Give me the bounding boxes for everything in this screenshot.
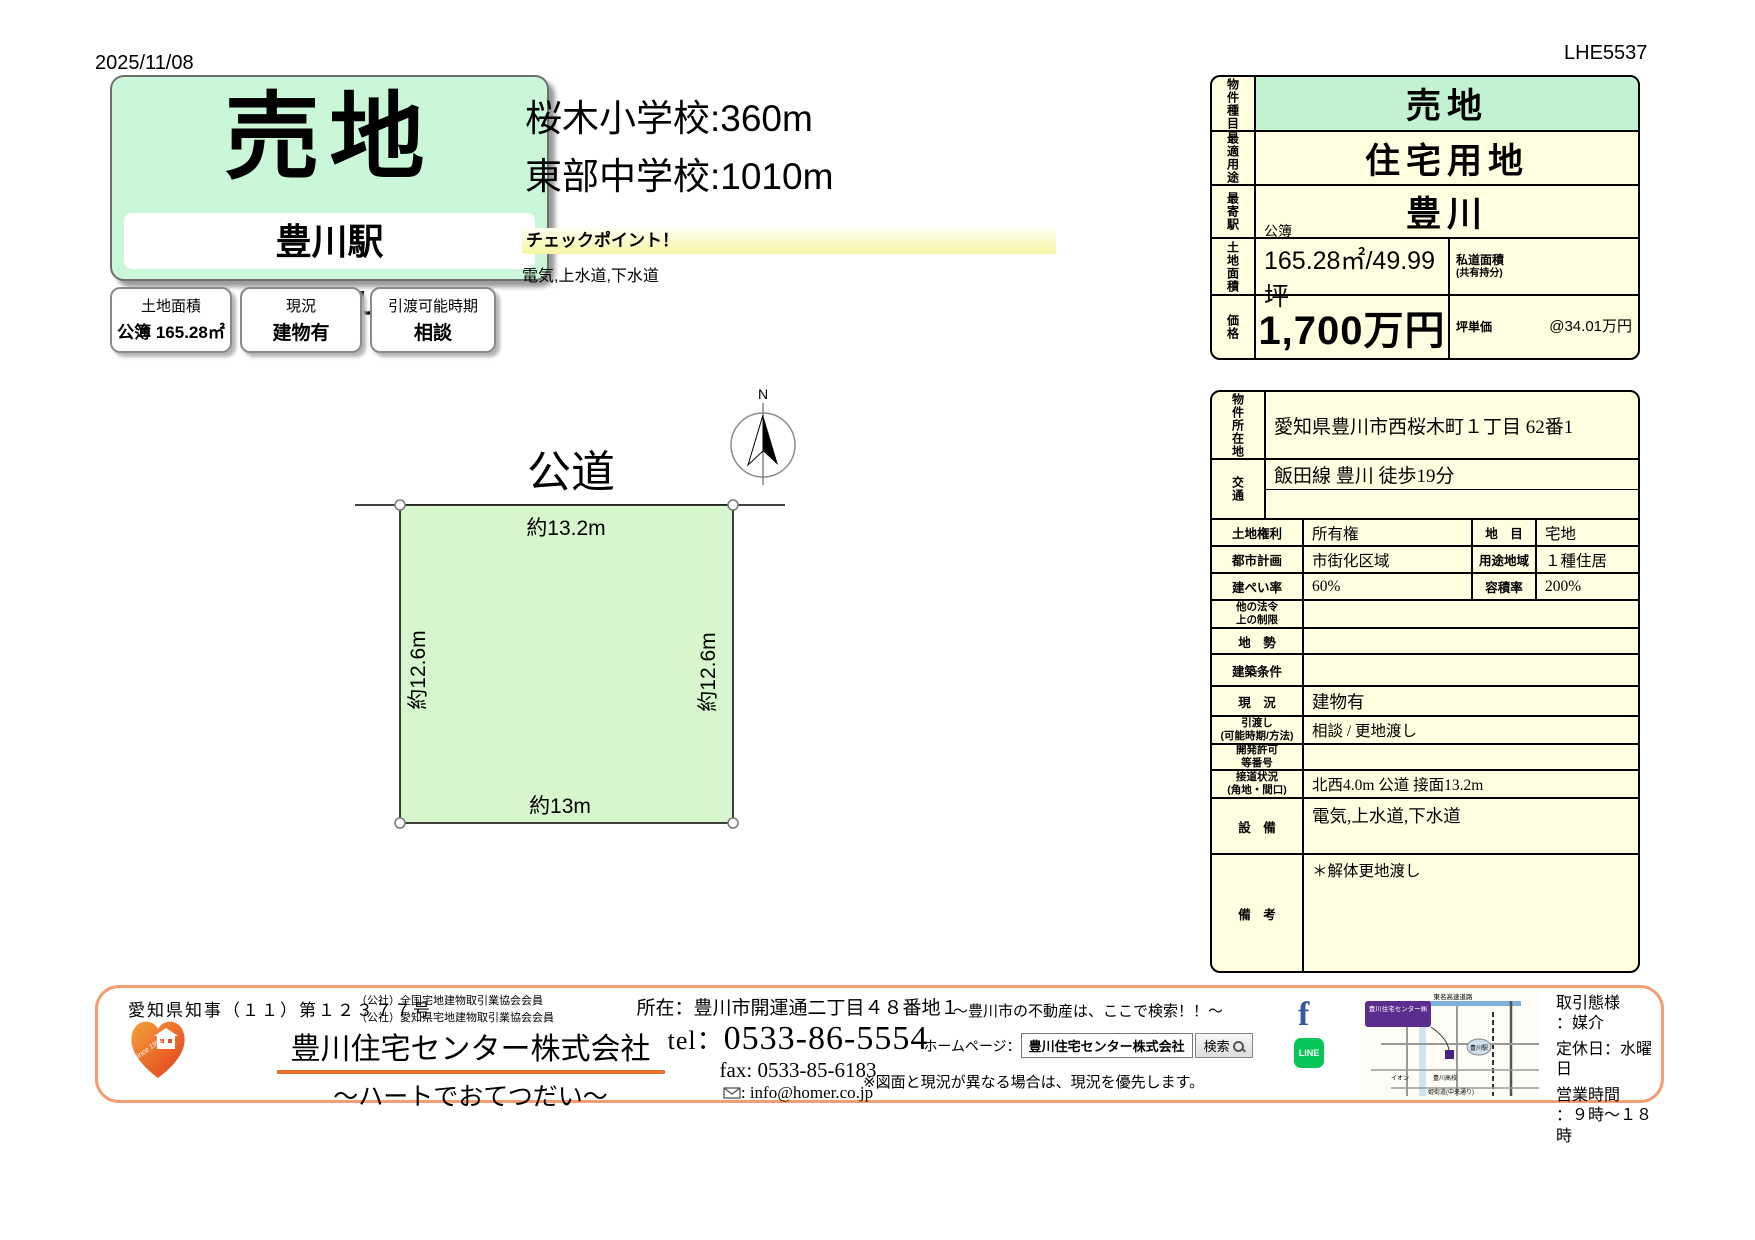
company-heart-logo: since 1982 [126, 1014, 190, 1084]
elementary-school-distance: 桜木小学校:360m [525, 88, 813, 142]
svg-text:東名高速道路: 東名高速道路 [1434, 992, 1474, 1001]
summary-value-area: 公簿 165.28㎡/49.99坪 [1256, 239, 1448, 294]
flyer-page: 2025/11/08 LHE5537 売地 豊川駅 更地渡し 土地面積 公簿 1… [0, 0, 1755, 1240]
facebook-icon[interactable]: f [1298, 996, 1309, 1034]
business-info-block: 取引態様 ：媒介 定休日：水曜日 営業時間 ：９時～１８時 [1556, 994, 1661, 1152]
hero-card: 売地 豊川駅 [110, 75, 549, 281]
detail-value-transport: 飯田線 豊川 徒歩19分 [1266, 460, 1638, 518]
utilities-note: 電気,上水道,下水道 [522, 262, 659, 286]
summary-label-area: 土地面積 [1212, 239, 1256, 294]
homepage-row: ホームページ：豊川住宅センター株式会社検索 [868, 1033, 1308, 1058]
homepage-label: ホームページ： [923, 1038, 1020, 1054]
compass-icon: N [731, 386, 795, 485]
detail-label-location: 物件所在地 [1212, 392, 1266, 458]
svg-text:イオン: イオン [1391, 1075, 1409, 1082]
info-card-current-state: 現況 建物有 [240, 287, 362, 353]
plot-diagram: 公道 N 約13.2m 約12.6m 約12.6m 約13m [330, 385, 810, 840]
land-parcel [400, 505, 733, 823]
unit-price-cell: 坪単価 @34.01万円 [1448, 296, 1638, 358]
dimension-bottom: 約13m [529, 795, 591, 818]
property-type-title: 売地 [112, 79, 547, 198]
info-card-land-area: 土地面積 公簿 165.28㎡ [110, 287, 232, 353]
summary-label-use: 最適用途 [1212, 132, 1256, 184]
print-date: 2025/11/08 [95, 52, 194, 75]
envelope-icon [723, 1087, 741, 1099]
info-card-handover: 引渡可能時期 相談 [370, 287, 496, 353]
dimension-top: 約13.2m [526, 517, 605, 540]
corner-marker [728, 500, 738, 510]
corner-marker [395, 818, 405, 828]
line-icon[interactable]: LINE [1294, 1038, 1324, 1068]
svg-text:豊川住宅センター㈱: 豊川住宅センター㈱ [1369, 1004, 1428, 1013]
summary-label-station: 最寄駅 [1212, 186, 1256, 237]
summary-value-type: 売地 [1256, 77, 1638, 130]
association-memberships: （公社）全国宅地建物取引業協会会員 （公社）愛知県宅地建物取引業協会会員 [356, 993, 554, 1026]
search-banner: ～豊川市の不動産は、ここで検索！！～ [868, 1000, 1308, 1021]
dimension-right: 約12.6m [697, 632, 720, 711]
corner-marker [395, 500, 405, 510]
summary-value-price: 1,700万円 [1256, 296, 1448, 358]
summary-label-type: 物件種目 [1212, 77, 1256, 130]
checkpoint-banner: チェックポイント！ [522, 228, 1056, 254]
corner-marker [728, 818, 738, 828]
svg-text:豊川駅: 豊川駅 [1470, 1044, 1488, 1052]
nearest-station-banner: 豊川駅 [124, 213, 535, 269]
junior-high-distance: 東部中学校:1010m [525, 146, 833, 200]
svg-text:姫街道(中央通り): 姫街道(中央通り) [1428, 1088, 1474, 1096]
property-code: LHE5537 [1560, 42, 1651, 65]
search-button[interactable]: 検索 [1195, 1033, 1253, 1058]
private-road-cell: 私道面積 (共有持分) [1448, 239, 1638, 294]
detail-value-location: 愛知県豊川市西桜木町１丁目 62番1 [1266, 392, 1638, 458]
summary-table: 物件種目 売地 最適用途 住宅用地 最寄駅 豊川 土地面積 公簿 165.28㎡… [1210, 75, 1640, 360]
detail-label-transport: 交通 [1212, 460, 1266, 518]
business-hours: 営業時間 ：９時～１８時 [1556, 1086, 1661, 1147]
magnifier-icon [1233, 1041, 1244, 1052]
dimension-left: 約12.6m [407, 630, 430, 709]
homepage-keyword-box[interactable]: 豊川住宅センター株式会社 [1021, 1033, 1193, 1058]
disclaimer-note: ※図面と現況が異なる場合は、現況を優先します。 [863, 1071, 1204, 1092]
footer-bar: 愛知県知事（１１）第１２３７７号 （公社）全国宅地建物取引業協会会員 （公社）愛… [95, 985, 1664, 1103]
road-label: 公道 [527, 448, 615, 497]
summary-label-price: 価格 [1212, 296, 1256, 358]
detail-table: 物件所在地 愛知県豊川市西桜木町１丁目 62番1 交通 飯田線 豊川 徒歩19分… [1210, 390, 1640, 973]
map-thumbnail: 東名高速道路 豊川住宅センター㈱ 豊川駅 豊川高校 イオン 姫街道(中央通り) [1361, 992, 1539, 1096]
transaction-type: 取引態様 ：媒介 [1556, 994, 1661, 1035]
summary-value-use: 住宅用地 [1256, 132, 1638, 184]
closed-day: 定休日：水曜日 [1556, 1040, 1661, 1081]
svg-text:豊川高校: 豊川高校 [1433, 1074, 1457, 1082]
svg-text:N: N [758, 386, 768, 402]
